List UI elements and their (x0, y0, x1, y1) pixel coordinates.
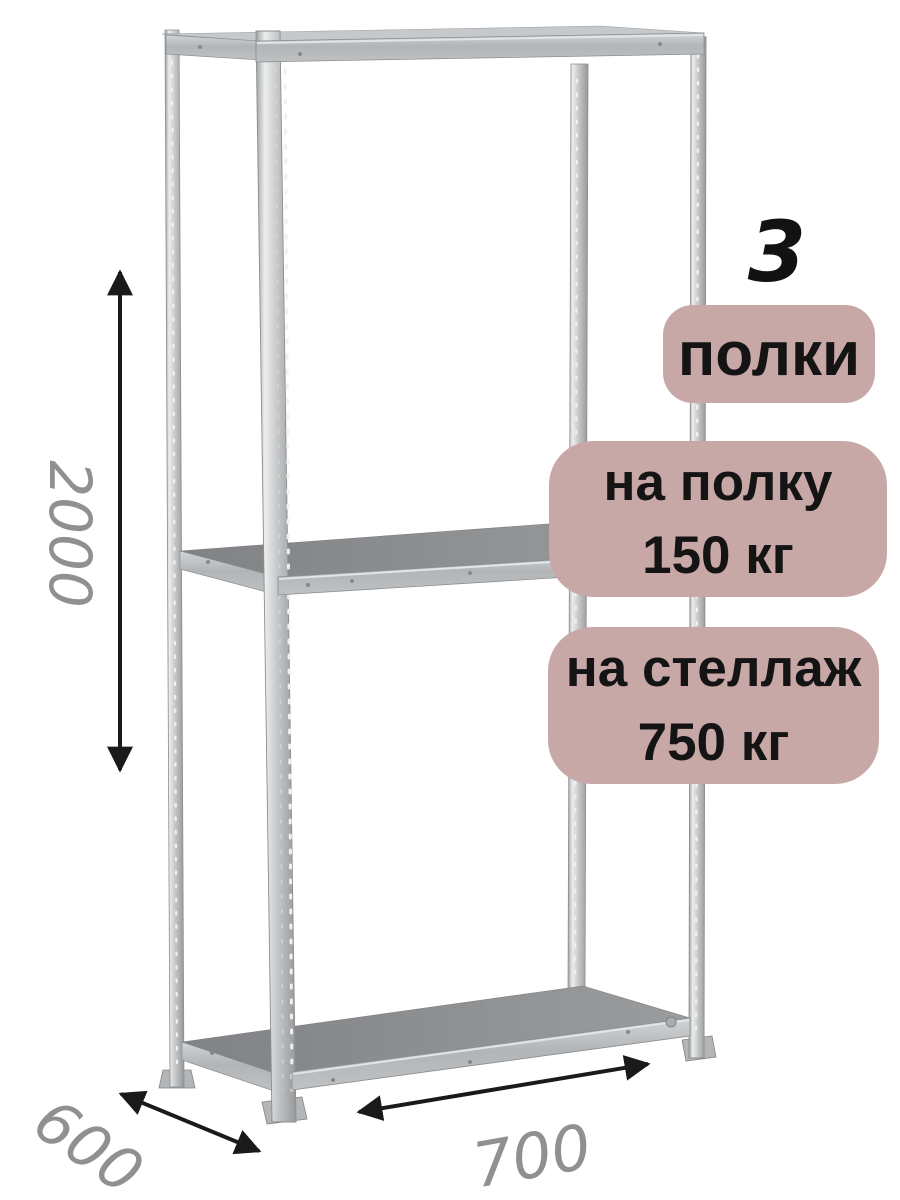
product-image: 2000 600 700 3 полки на полку 150 кг на … (0, 0, 900, 1200)
per-shelf-load-line1: на полку (604, 446, 833, 519)
per-rack-load-line1: на стеллаж (566, 632, 862, 705)
per-shelf-load-line2: 150 кг (642, 519, 794, 592)
shelf-count-number: 3 (722, 210, 832, 294)
depth-dimension-label: 600 (21, 1085, 155, 1200)
shelving-rack-illustration: 2000 600 700 (0, 0, 900, 1200)
per-rack-load-badge: на стеллаж 750 кг (548, 627, 879, 784)
height-dimension-label: 2000 (36, 460, 104, 608)
shelf-count-badge-label: полки (678, 319, 860, 390)
per-rack-load-line2: 750 кг (638, 706, 790, 779)
width-dimension: 700 (359, 1064, 648, 1200)
depth-dimension: 600 (21, 1085, 259, 1200)
shelf-count-badge: полки (663, 305, 875, 403)
per-shelf-load-badge: на полку 150 кг (549, 441, 887, 597)
width-dimension-label: 700 (467, 1110, 596, 1200)
height-dimension: 2000 (36, 272, 120, 770)
